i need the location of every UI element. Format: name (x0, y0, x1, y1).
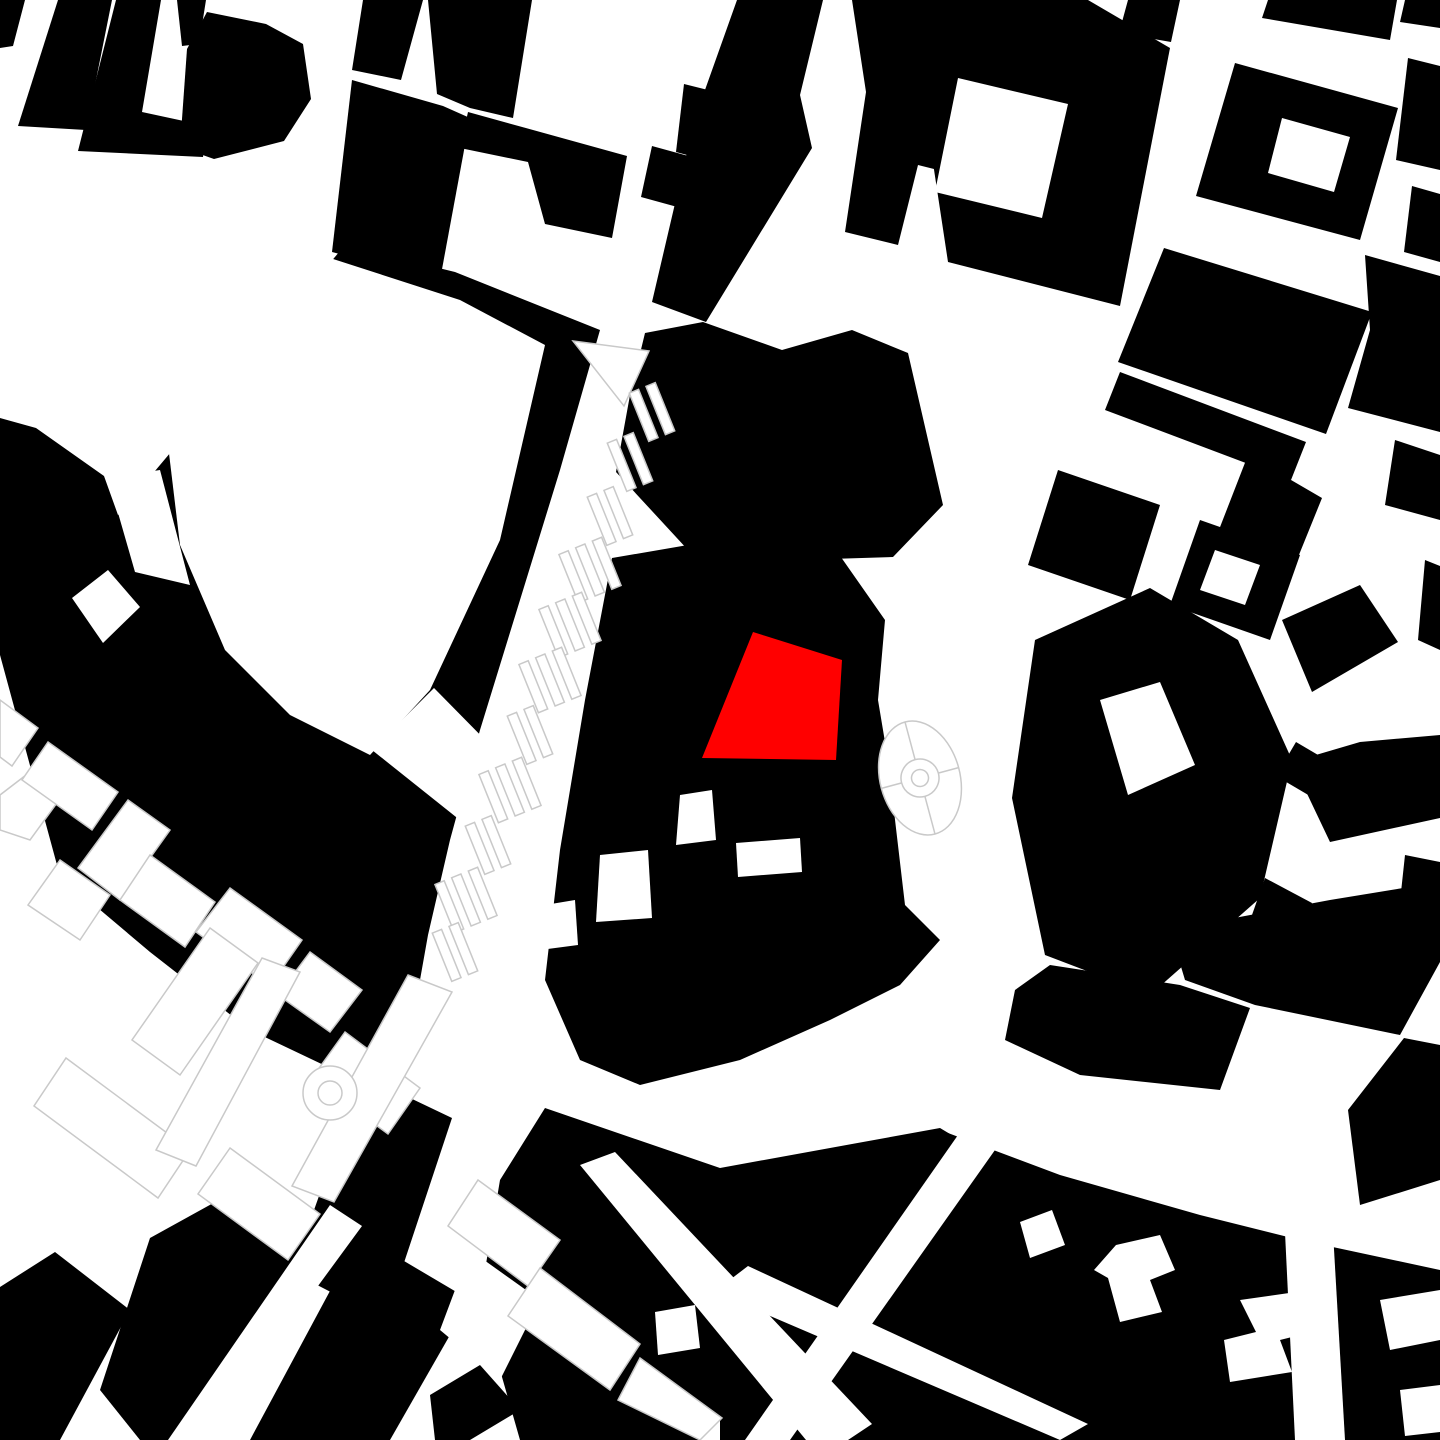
courtyard-cutout (655, 1305, 700, 1355)
roundabout-circle (303, 1066, 357, 1120)
site-plan-canvas (0, 0, 1440, 1440)
courtyard-cutout (540, 900, 578, 950)
courtyard-cutout (676, 790, 716, 845)
courtyard-cutout (596, 850, 652, 922)
roundabout-inner-circle (318, 1081, 342, 1105)
figure-ground-map (0, 0, 1440, 1440)
courtyard-cutout (1400, 1385, 1440, 1436)
courtyard-cutout (736, 838, 802, 877)
courtyard-cutout (1380, 1290, 1440, 1350)
